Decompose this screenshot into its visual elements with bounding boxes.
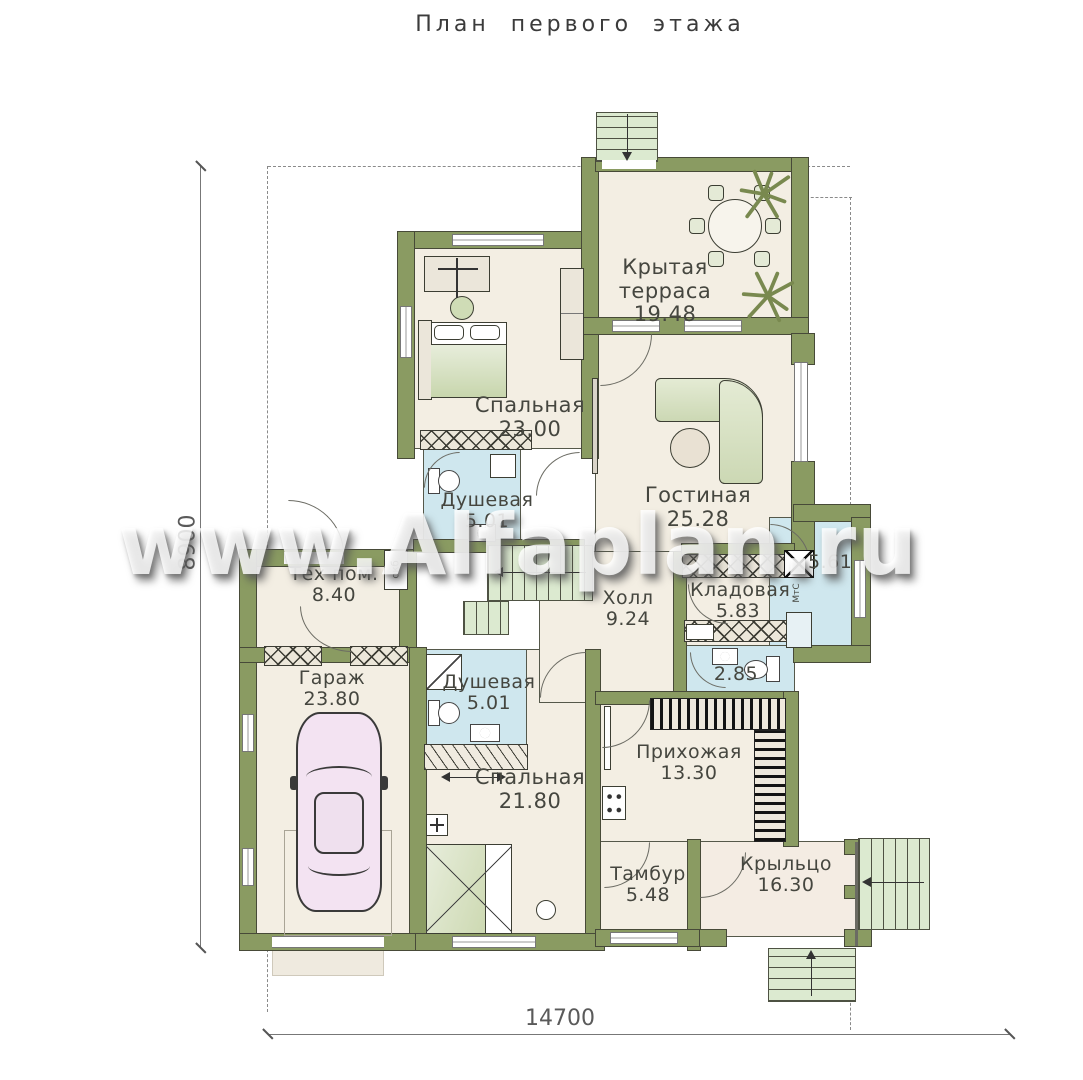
window xyxy=(452,234,544,246)
terrace-stairs-opening xyxy=(602,160,656,169)
window-bay xyxy=(794,362,808,462)
stairs-arrow-line xyxy=(502,572,586,573)
room-label-storage: Кладовая 5.83 xyxy=(690,580,786,623)
pillow xyxy=(434,325,464,340)
arrow-left-icon xyxy=(862,877,871,887)
clothes-rack xyxy=(754,730,786,842)
room-area: 5.61 xyxy=(808,552,864,573)
room-area: 2.85 xyxy=(700,664,772,685)
room-label-living: Гостиная 25.28 xyxy=(618,484,778,531)
arrow-left-icon xyxy=(494,567,503,577)
clothes-rack xyxy=(650,698,786,730)
car-mirror xyxy=(290,776,298,790)
room-label-terrace: Крытая терраса 19.48 xyxy=(598,256,732,327)
room-label-shower2: Душевая 5.01 xyxy=(436,672,542,715)
page-title: План первого этажа xyxy=(200,12,960,37)
room-area: 25.28 xyxy=(618,508,778,532)
room-name: Спальная xyxy=(458,394,602,418)
room-area: 16.30 xyxy=(728,875,844,896)
room-area: 8.40 xyxy=(268,585,400,606)
car-mirror xyxy=(380,776,388,790)
bed-headboard xyxy=(418,320,432,400)
floor-plan-canvas: План первого этажа 8900 14700 xyxy=(0,0,1083,1080)
room-label-tech: Тех пом. 8.40 xyxy=(268,564,400,607)
arrow-down-icon xyxy=(622,152,632,161)
room-label-porch: Крыльцо 16.30 xyxy=(728,854,844,897)
stairs-arrow-line xyxy=(811,956,812,996)
room-name: Холл xyxy=(592,588,664,609)
terrace-chair xyxy=(754,251,770,267)
dim-label-bottom: 14700 xyxy=(525,1006,595,1031)
pillow xyxy=(470,325,500,340)
chair xyxy=(450,296,474,320)
dim-label-left: 8900 xyxy=(176,503,201,583)
washbasin-cabinet xyxy=(490,454,516,478)
terrace-chair xyxy=(689,218,705,234)
room-area: 5.01 xyxy=(436,693,542,714)
plus-icon xyxy=(436,818,438,832)
room-label-entry: Прихожая 13.30 xyxy=(626,742,752,785)
bed-blanket xyxy=(431,344,507,398)
room-label-garage: Гараж 23.80 xyxy=(276,668,388,711)
room-area: 9.24 xyxy=(592,609,664,630)
laundry-shelf xyxy=(786,612,812,648)
room-label-bedroom1: Спальная 23.00 xyxy=(458,394,602,441)
bench xyxy=(686,624,714,640)
room-label-hall: Холл 9.24 xyxy=(592,588,664,631)
room-area: 19.48 xyxy=(598,303,732,327)
room-label-laundry: 5.61 xyxy=(808,552,864,573)
wardrobe-divider xyxy=(561,313,583,314)
room-name: Прихожая xyxy=(626,742,752,763)
room-name: Тамбур xyxy=(602,864,694,885)
sink xyxy=(470,724,500,742)
room-name: Душевая xyxy=(436,672,542,693)
shoe-cabinet xyxy=(602,786,626,820)
plant-icon xyxy=(736,166,792,222)
window xyxy=(452,936,536,948)
bed-canopy xyxy=(426,844,512,934)
room-name: Крыльцо xyxy=(728,854,844,875)
arrow-up-icon xyxy=(806,950,816,959)
door-arc xyxy=(536,452,580,496)
room-label-tambour: Тамбур 5.48 xyxy=(602,864,694,907)
coffee-table xyxy=(670,428,710,468)
room-area: 21.80 xyxy=(458,790,602,814)
wall xyxy=(410,648,426,950)
desk-lamp-icon xyxy=(456,258,458,298)
garage-door-opening xyxy=(272,936,384,948)
room-name: Спальная xyxy=(458,766,602,790)
room-area: 5.83 xyxy=(690,601,786,622)
room-name: Душевая xyxy=(434,490,540,511)
wall xyxy=(845,930,871,946)
room-area: 13.30 xyxy=(626,763,752,784)
room-name: Тех пом. xyxy=(268,564,400,585)
window xyxy=(242,848,254,886)
window xyxy=(400,306,412,358)
arrow-left-icon xyxy=(441,772,450,782)
room-name: Кладовая xyxy=(690,580,786,601)
room-label-wc: 2.85 xyxy=(700,664,772,685)
wall xyxy=(784,692,798,846)
internal-staircase-lower xyxy=(463,601,509,635)
stairs-arrow-line xyxy=(870,882,924,883)
window xyxy=(610,932,678,944)
terrace-chair xyxy=(708,185,724,201)
room-area: 5.48 xyxy=(602,885,694,906)
room-label-bedroom2: Спальная 21.80 xyxy=(458,766,602,813)
room-name: Гараж xyxy=(276,668,388,689)
wall xyxy=(700,930,726,946)
car-windshield xyxy=(306,766,372,788)
boundary-dash-bottom-right xyxy=(850,998,851,1030)
dim-line-bottom xyxy=(268,1034,1010,1035)
boundary-dash-top-right xyxy=(806,197,852,198)
door-arc xyxy=(288,500,344,554)
washer-label: МтС xyxy=(792,576,802,610)
room-label-shower1: Душевая 5.01 xyxy=(434,490,540,533)
wardrobe xyxy=(560,268,584,360)
room-area: 5.01 xyxy=(434,511,540,532)
room-area: 23.00 xyxy=(458,418,602,442)
stool xyxy=(536,900,556,920)
garage-shelves xyxy=(350,646,408,666)
garage-shelves xyxy=(264,646,322,666)
porch-railing xyxy=(855,842,858,946)
room-area: 23.80 xyxy=(276,689,388,710)
car-roof xyxy=(314,792,364,854)
plant-icon xyxy=(740,268,796,324)
room-name: Крытая терраса xyxy=(598,256,732,303)
stairs-arrow-line xyxy=(627,114,628,154)
car-rear-window xyxy=(308,856,370,876)
wall xyxy=(794,646,870,662)
wall xyxy=(792,334,814,364)
room-name: Гостиная xyxy=(618,484,778,508)
driveway xyxy=(272,950,384,976)
desk-lamp-icon xyxy=(438,268,478,270)
window xyxy=(242,714,254,752)
